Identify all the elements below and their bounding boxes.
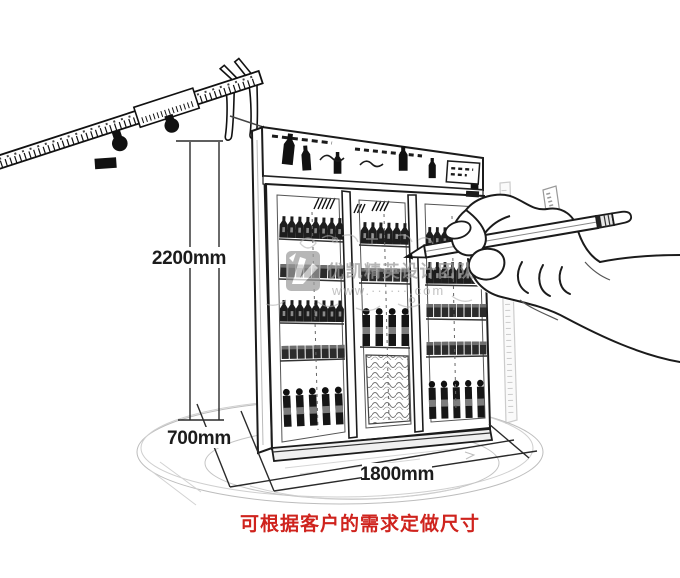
depth-dimension-label: 700mm xyxy=(167,428,231,449)
custom-size-caption: 可根据客户的需求定做尺寸 xyxy=(0,509,680,536)
vernier-caliper-icon xyxy=(0,54,278,220)
watermark-logo-icon xyxy=(286,251,320,291)
product-illustration: 2200mm 700mm 1800mm xyxy=(0,0,680,578)
sketch-canvas: 2200mm 700mm 1800mm xyxy=(0,0,680,578)
height-dimension-label: 2200mm xyxy=(152,248,226,269)
watermark-site-text: www.······.com xyxy=(331,283,445,298)
height-dimension xyxy=(176,141,224,420)
width-dimension-label: 1800mm xyxy=(360,464,434,485)
watermark-brand-text: 优凯精英设计团队 xyxy=(327,261,475,281)
